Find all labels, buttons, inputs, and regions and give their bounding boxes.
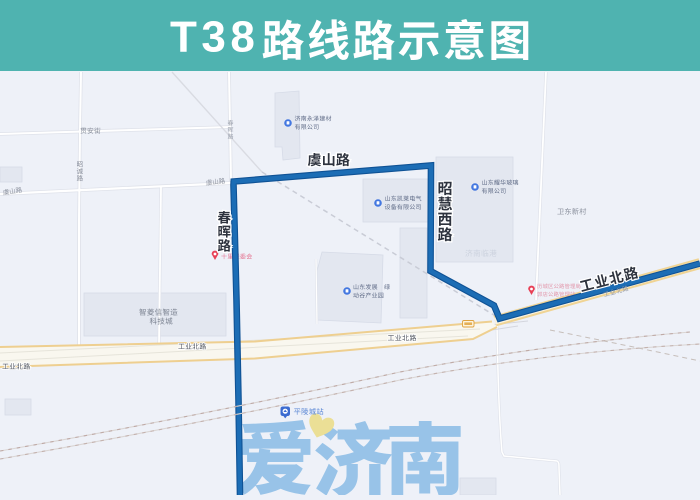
svg-text:T38: T38 (170, 13, 259, 62)
